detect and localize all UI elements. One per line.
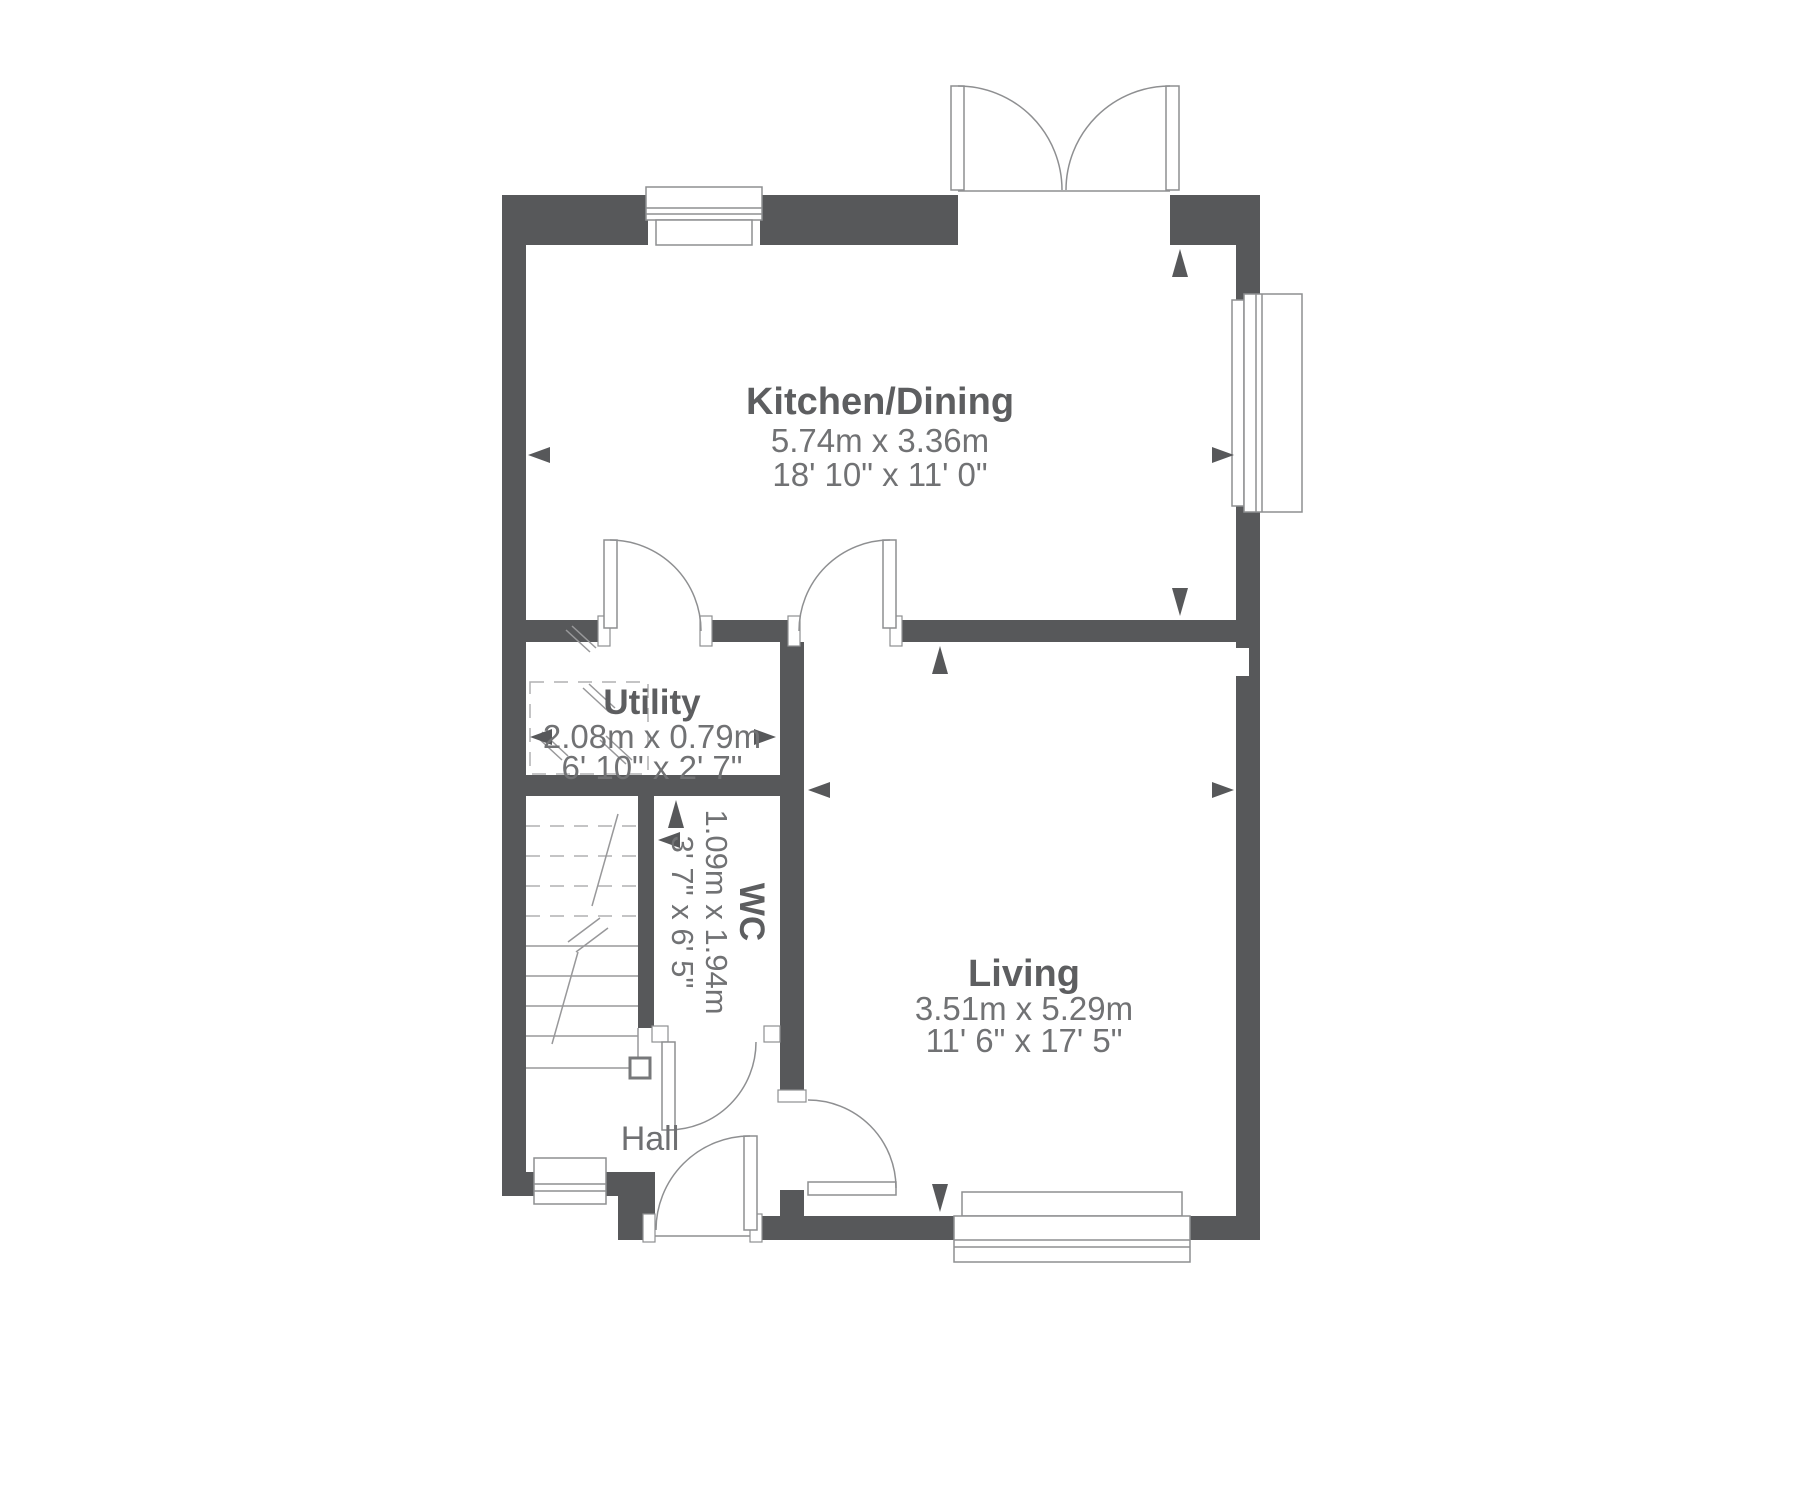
staircase bbox=[526, 814, 650, 1078]
wc-label: WC bbox=[732, 883, 771, 941]
room-labels: Kitchen/Dining 5.74m x 3.36m 18' 10" x 1… bbox=[543, 381, 1133, 1158]
stair-newel-post bbox=[630, 1058, 650, 1078]
entrance-step-block bbox=[618, 1172, 655, 1220]
kitchen-top-window bbox=[646, 187, 762, 245]
dim-arrow-down bbox=[1172, 588, 1188, 616]
top-wall-left bbox=[502, 195, 648, 245]
floorplan-drawing: Kitchen/Dining 5.74m x 3.36m 18' 10" x 1… bbox=[0, 0, 1800, 1500]
hall-side-window bbox=[534, 1158, 606, 1204]
hall-bottom-wall-left bbox=[502, 1172, 536, 1196]
kitchen-right-window bbox=[1232, 294, 1302, 512]
kitchen-bottom-wall-c bbox=[890, 620, 1236, 642]
dim-arrow-up bbox=[1172, 249, 1188, 277]
french-door-left-arc bbox=[958, 86, 1062, 190]
wc-imperial: 3' 7" x 6' 5" bbox=[665, 836, 700, 989]
french-door-right-leaf bbox=[1166, 86, 1179, 190]
stair-direction-line bbox=[592, 814, 618, 906]
dim-arrow-up bbox=[932, 646, 948, 674]
utility-label: Utility bbox=[603, 683, 701, 722]
kitchen-bottom-wall-b bbox=[700, 620, 800, 642]
top-wall-right bbox=[1170, 195, 1260, 245]
stair-direction-line bbox=[552, 952, 578, 1044]
hall-living-door bbox=[778, 1090, 896, 1195]
floorplan-page: Kitchen/Dining 5.74m x 3.36m 18' 10" x 1… bbox=[0, 0, 1800, 1500]
stairs-wc-wall bbox=[638, 796, 654, 1028]
dim-arrow-left bbox=[808, 782, 830, 798]
dim-arrow-right bbox=[1212, 447, 1234, 463]
kitchen-dining-label: Kitchen/Dining bbox=[746, 381, 1014, 423]
living-imperial: 11' 6" x 17' 5" bbox=[926, 1022, 1123, 1059]
hall-label: Hall bbox=[621, 1120, 680, 1158]
dim-arrow-up bbox=[668, 800, 684, 828]
utility-imperial: 6' 10" x 2' 7" bbox=[562, 749, 743, 786]
french-doors bbox=[951, 86, 1179, 191]
wc-label-group: WC 1.09m x 1.94m 3' 7" x 6' 5" bbox=[665, 809, 771, 1014]
top-wall-middle bbox=[760, 195, 958, 245]
kitchen-dining-metric: 5.74m x 3.36m bbox=[771, 422, 989, 459]
kitchen-utility-door bbox=[598, 540, 712, 646]
french-door-left-leaf bbox=[951, 86, 964, 190]
kitchen-dining-imperial: 18' 10" x 11' 0" bbox=[772, 456, 987, 493]
hall-living-wall-pier bbox=[780, 1190, 804, 1216]
wc-door bbox=[652, 1026, 780, 1130]
hall-living-wall bbox=[780, 642, 804, 1100]
kitchen-living-door bbox=[788, 540, 902, 646]
dim-arrow-right bbox=[1212, 782, 1234, 798]
left-wall bbox=[502, 195, 526, 1196]
living-bottom-window bbox=[954, 1192, 1190, 1262]
right-wall-lower bbox=[1236, 505, 1260, 1216]
wc-metric: 1.09m x 1.94m bbox=[699, 809, 734, 1014]
living-label: Living bbox=[968, 953, 1080, 995]
french-door-right-arc bbox=[1066, 86, 1170, 190]
right-wall-notch bbox=[1236, 648, 1249, 676]
dim-arrow-down bbox=[932, 1184, 948, 1212]
dim-arrow-left bbox=[528, 447, 550, 463]
